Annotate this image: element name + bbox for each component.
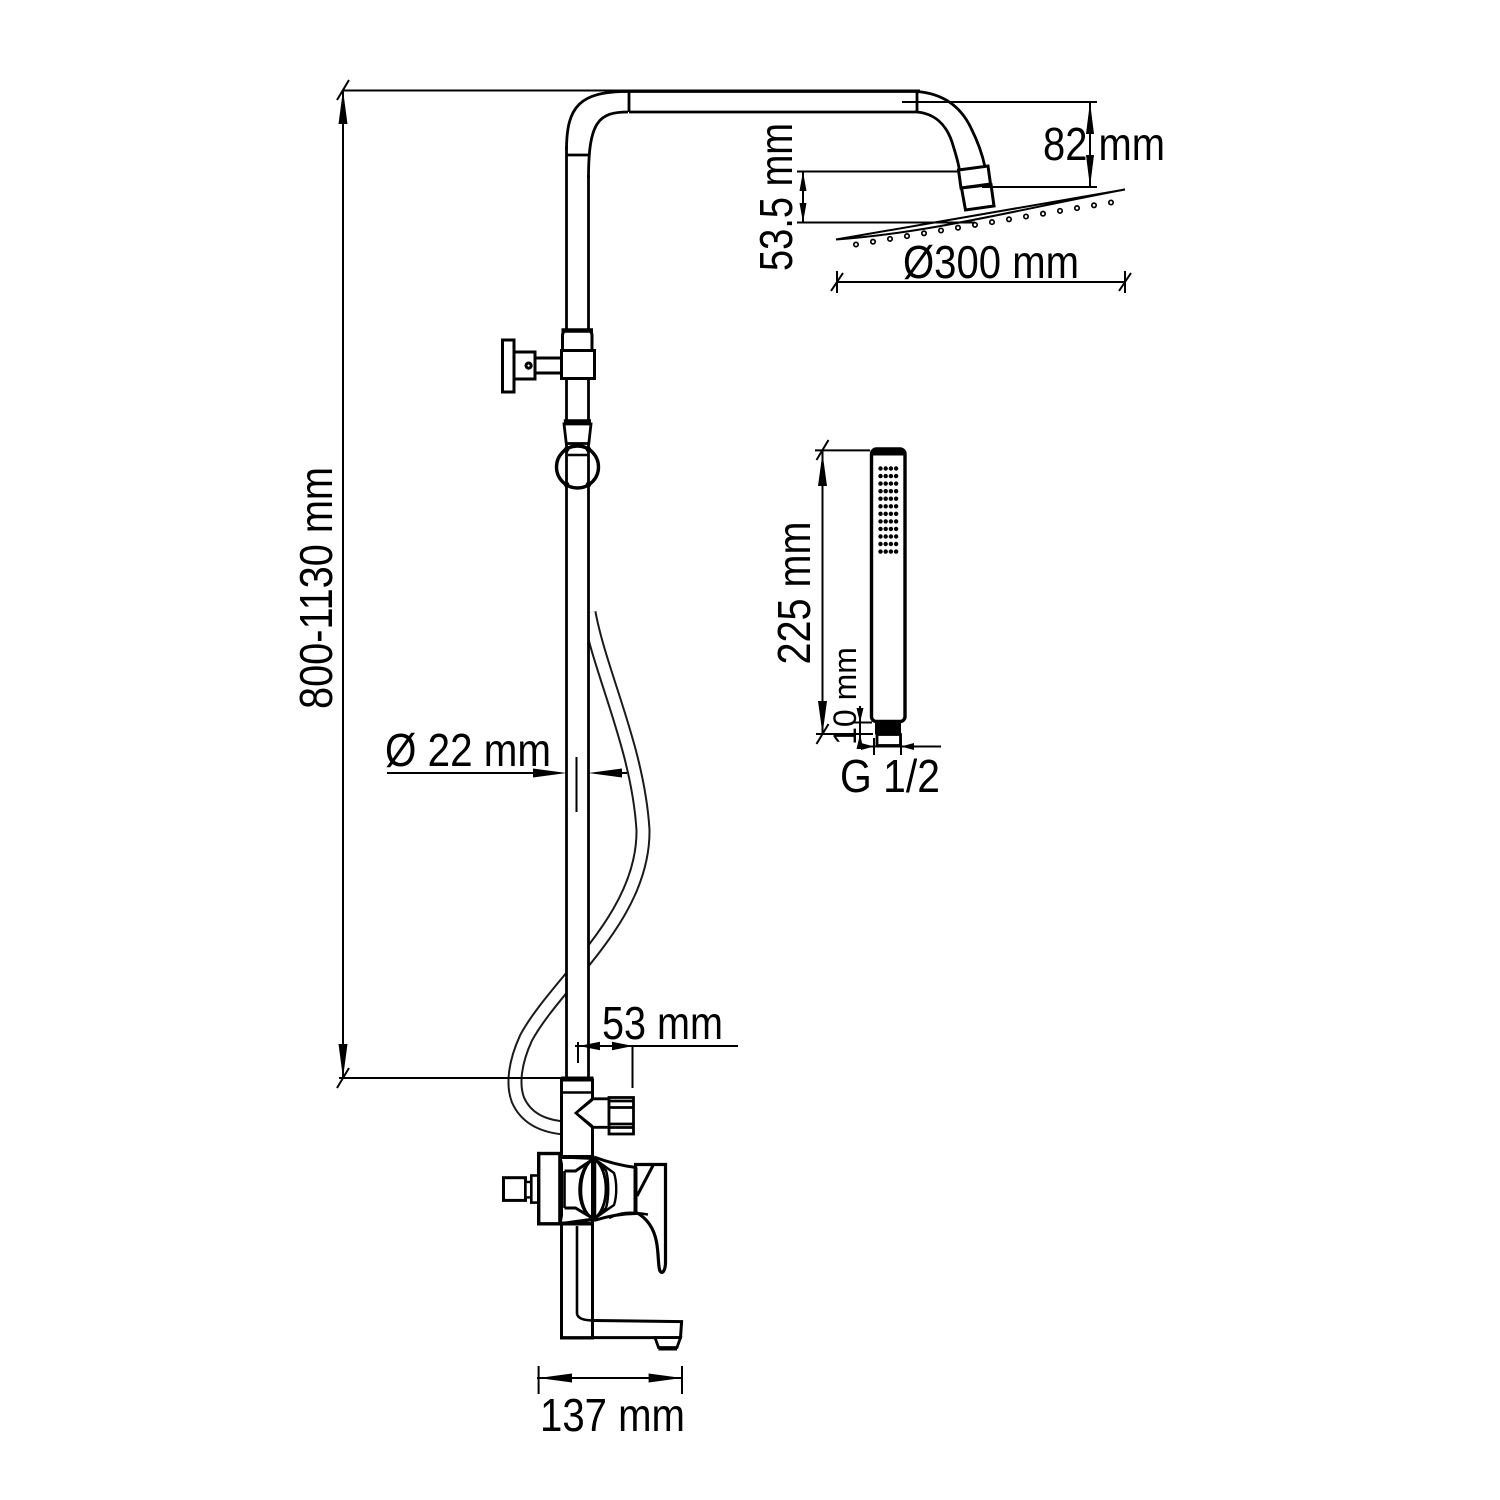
svg-text:G 1/2: G 1/2 — [840, 750, 940, 802]
svg-text:82 mm: 82 mm — [1043, 118, 1165, 170]
svg-text:Ø300 mm: Ø300 mm — [903, 236, 1079, 288]
svg-text:137 mm: 137 mm — [540, 1389, 685, 1441]
svg-text:10 mm: 10 mm — [827, 647, 863, 745]
svg-text:225 mm: 225 mm — [768, 522, 820, 665]
svg-text:800-1130 mm: 800-1130 mm — [290, 467, 342, 709]
svg-text:53.5 mm: 53.5 mm — [750, 123, 802, 271]
svg-text:Ø 22 mm: Ø 22 mm — [385, 724, 551, 776]
svg-text:53 mm: 53 mm — [602, 997, 723, 1049]
